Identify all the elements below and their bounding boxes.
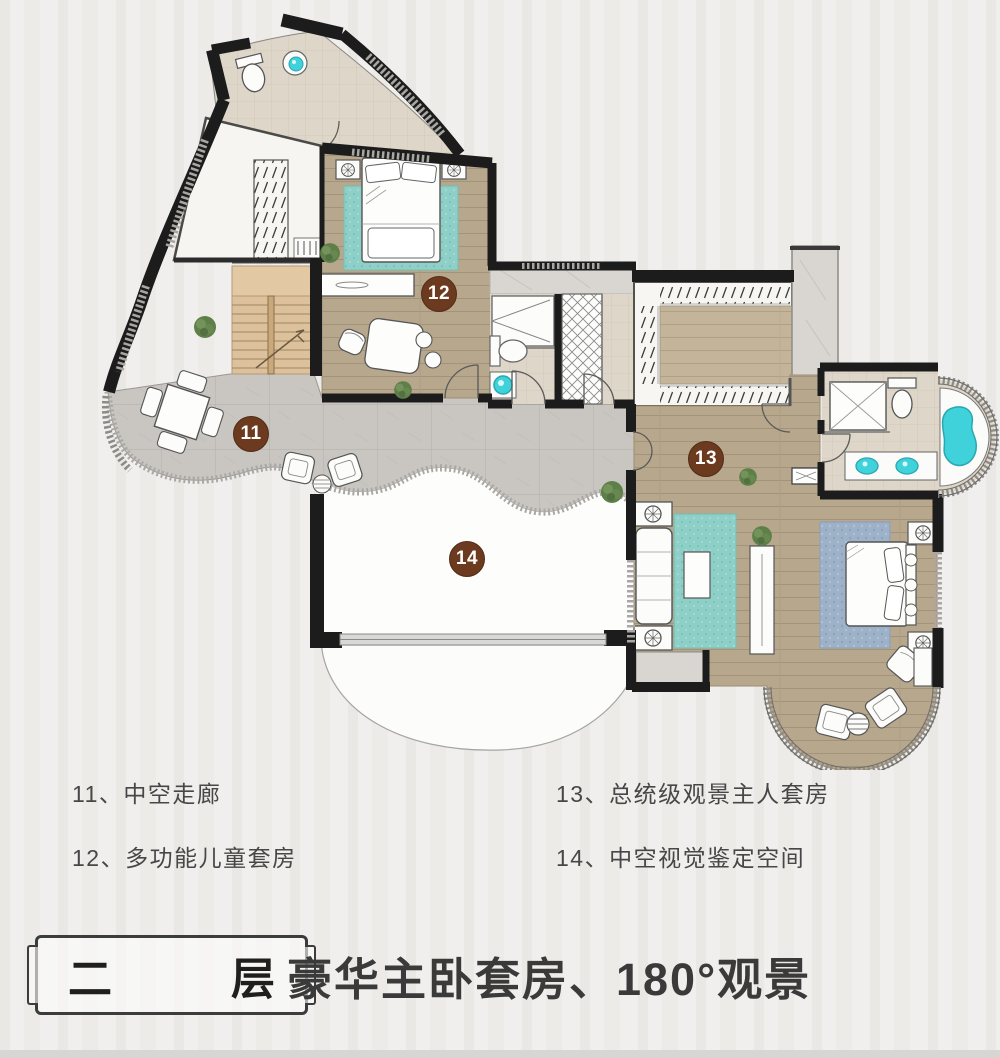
legend-separator: 、 bbox=[585, 845, 610, 871]
marble-niche bbox=[792, 246, 838, 378]
coffee-table bbox=[684, 552, 710, 598]
floor-char-right: 层 bbox=[231, 943, 275, 1007]
shower bbox=[492, 296, 554, 346]
drum-stool bbox=[313, 475, 331, 493]
sliding-door bbox=[340, 634, 606, 645]
sink bbox=[896, 458, 918, 474]
page-title: 豪华主卧套房、180°观景 bbox=[287, 933, 811, 1017]
legend-label: 总统级观景主人套房 bbox=[609, 781, 830, 807]
sofa bbox=[636, 528, 672, 624]
legend-label: 中空走廊 bbox=[123, 781, 221, 807]
room-badge-12: 12 bbox=[421, 276, 457, 312]
legend-item-11: 11、中空走廊 bbox=[72, 775, 297, 809]
legend-label: 中空视觉鉴定空间 bbox=[609, 845, 805, 871]
floor-plan: 11 12 13 14 bbox=[0, 0, 1000, 770]
stool bbox=[416, 332, 432, 348]
balcony-sill bbox=[636, 652, 706, 685]
bottom-edge bbox=[0, 1050, 1000, 1058]
desk bbox=[364, 317, 424, 374]
walkin-closet bbox=[634, 282, 792, 406]
legend-number: 13 bbox=[556, 781, 585, 807]
void-space bbox=[317, 468, 636, 750]
children-bedroom bbox=[318, 146, 492, 398]
room-badge-11: 11 bbox=[233, 416, 269, 452]
footer: 二 层 豪华主卧套房、180°观景 bbox=[0, 933, 1000, 1017]
legend-number: 11 bbox=[72, 781, 99, 807]
console bbox=[914, 648, 932, 686]
sink bbox=[283, 51, 307, 75]
legend-separator: 、 bbox=[99, 781, 124, 807]
legend-right: 13、总统级观景主人套房 14、中空视觉鉴定空间 bbox=[556, 775, 830, 903]
floor-level-box: 二 层 bbox=[35, 935, 308, 1015]
dresser bbox=[318, 274, 414, 296]
staircase bbox=[232, 262, 314, 374]
legend-item-14: 14、中空视觉鉴定空间 bbox=[556, 839, 830, 873]
legend-number: 12 bbox=[72, 845, 101, 871]
legend-item-12: 12、多功能儿童套房 bbox=[72, 839, 297, 873]
floor-char-left: 二 bbox=[68, 943, 112, 1007]
bed bbox=[362, 158, 440, 262]
legend-left: 11、中空走廊 12、多功能儿童套房 bbox=[72, 775, 297, 903]
room-badge-14: 14 bbox=[449, 541, 485, 577]
legend-item-13: 13、总统级观景主人套房 bbox=[556, 775, 830, 809]
legend-separator: 、 bbox=[101, 845, 126, 871]
legend-number: 14 bbox=[556, 845, 585, 871]
stool bbox=[425, 352, 441, 368]
bathtub bbox=[943, 407, 977, 466]
shaft bbox=[562, 294, 602, 404]
room-badge-13: 13 bbox=[688, 441, 724, 477]
bed bbox=[846, 542, 917, 626]
sink bbox=[856, 458, 878, 474]
legend-separator: 、 bbox=[585, 781, 610, 807]
floor-plan-drawing bbox=[0, 0, 1000, 770]
drum-table bbox=[847, 713, 869, 735]
legend-label: 多功能儿童套房 bbox=[125, 845, 297, 871]
lounge-chair bbox=[280, 451, 315, 485]
